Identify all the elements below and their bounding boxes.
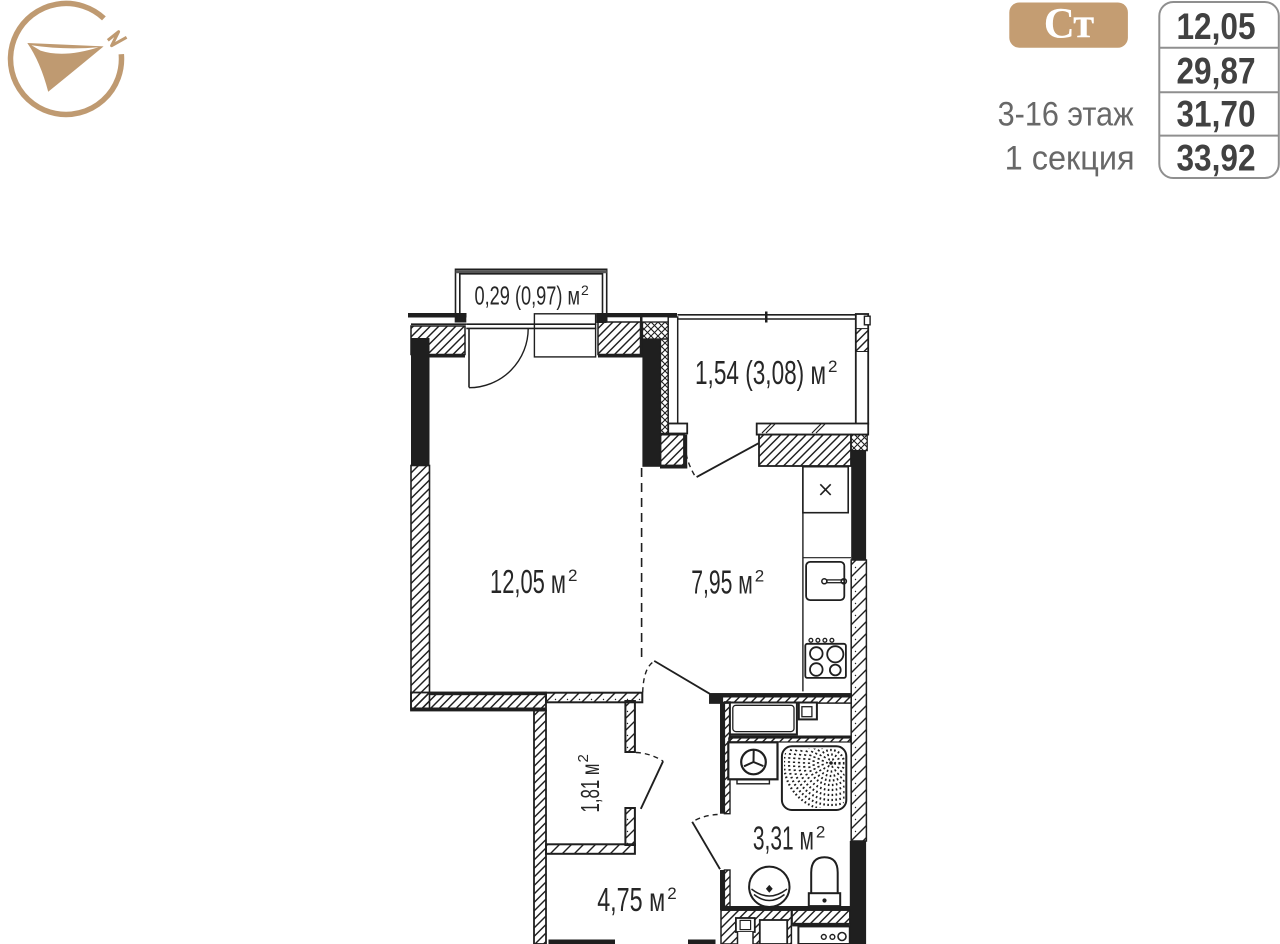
svg-text:31,70: 31,70 [1177,93,1256,134]
svg-text:4,75 м2: 4,75 м2 [597,881,676,918]
svg-text:12,05: 12,05 [1177,6,1256,47]
svg-text:3-16 этаж: 3-16 этаж [998,95,1134,133]
svg-text:1 секция: 1 секция [1005,140,1135,178]
svg-text:1,54 (3,08) м2: 1,54 (3,08) м2 [695,354,837,391]
svg-text:Ст: Ст [1044,0,1094,47]
svg-text:0,29 (0,97) м2: 0,29 (0,97) м2 [475,281,590,311]
svg-text:12,05 м2: 12,05 м2 [490,563,577,600]
svg-text:33,92: 33,92 [1177,137,1256,178]
svg-text:29,87: 29,87 [1177,50,1256,91]
